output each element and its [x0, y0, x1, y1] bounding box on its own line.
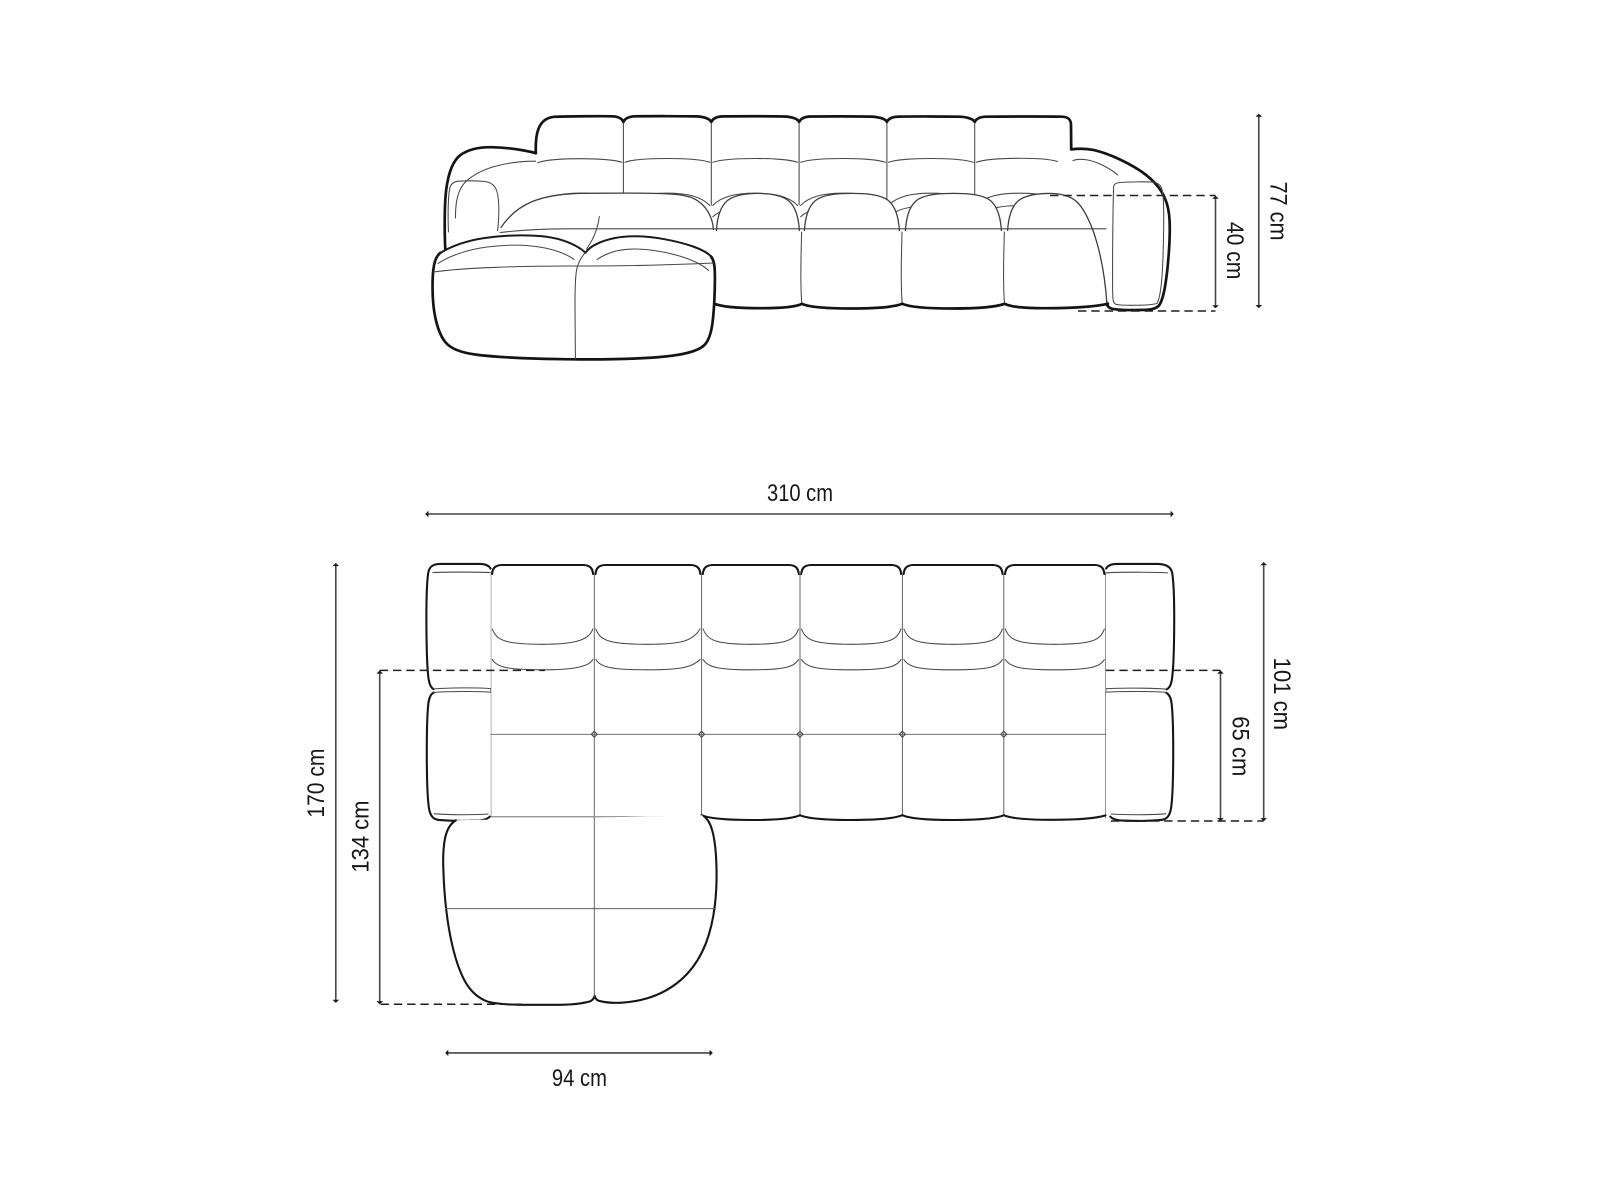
svg-text:40 cm: 40 cm: [1221, 222, 1248, 280]
svg-text:65 cm: 65 cm: [1227, 716, 1254, 776]
svg-text:310 cm: 310 cm: [767, 480, 833, 507]
svg-text:77 cm: 77 cm: [1264, 182, 1291, 241]
svg-text:170 cm: 170 cm: [303, 749, 330, 818]
svg-text:134 cm: 134 cm: [347, 801, 374, 873]
svg-text:94 cm: 94 cm: [552, 1065, 607, 1092]
svg-text:101 cm: 101 cm: [1268, 658, 1295, 731]
